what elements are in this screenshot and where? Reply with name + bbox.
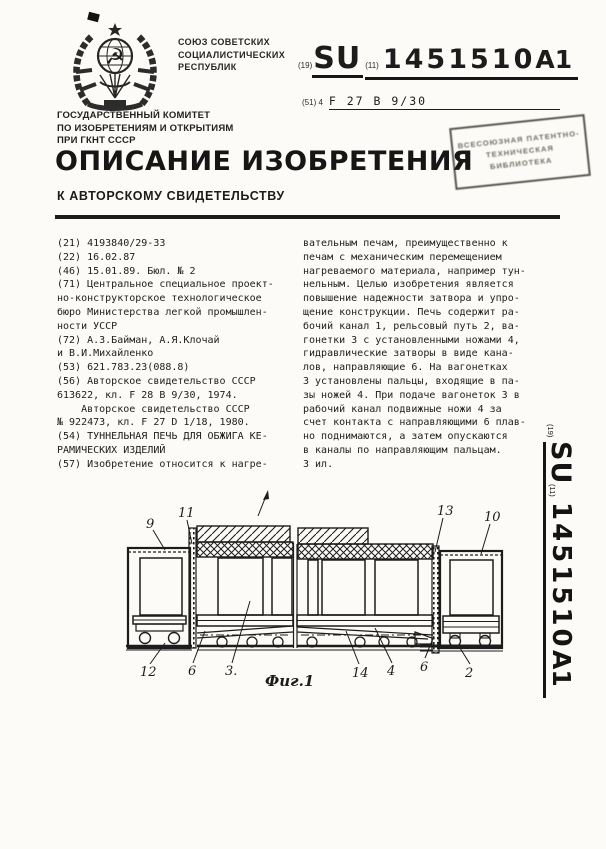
svg-text:☭: ☭	[105, 45, 125, 70]
figure-1-drawing: 9 11 13 10 12 6 3. 14 4 6 2 Фиг.1	[60, 486, 552, 706]
kiln-car-undercarriage	[197, 615, 433, 647]
country-code: SU	[312, 44, 363, 78]
doc-kind-code: A1	[535, 45, 572, 74]
abstract-column: вательным печам, преимущественно к печам…	[303, 237, 551, 472]
direction-arrow-icon	[263, 490, 269, 500]
code-19-label: (19)	[298, 61, 312, 70]
heavy-rule	[55, 215, 560, 219]
doc-number: 1451510	[383, 44, 536, 75]
ref-label-13: 13	[437, 504, 454, 519]
tunnel-roof	[197, 526, 433, 559]
doc-number-group: (11) 1451510 A1	[365, 44, 578, 80]
union-name: СОЮЗ СОВЕТСКИХ СОЦИАЛИСТИЧЕСКИХ РЕСПУБЛИ…	[178, 36, 285, 74]
ref-label-6a: 6	[188, 664, 196, 679]
ref-label-14: 14	[352, 666, 369, 681]
ref-label-11: 11	[178, 506, 195, 521]
entry-chamber	[126, 548, 192, 650]
page-title: ОПИСАНИЕ ИЗОБРЕТЕНИЯ	[55, 146, 473, 177]
rail-track	[197, 646, 433, 650]
side-country-code: SU	[545, 441, 576, 484]
exit-gate-wall	[432, 546, 439, 653]
side-code-19: (19)	[546, 424, 555, 437]
ipc-row: (51) 4 F 27 B 9/30	[302, 94, 560, 110]
ref-label-4: 4	[386, 664, 395, 679]
ref-label-3: 3.	[225, 664, 237, 679]
ref-label-2: 2	[464, 666, 473, 681]
patent-document-page: ☭ СОЮЗ СОВЕТСКИХ СОЦИАЛИСТИЧЕСКИХ РЕСПУБ…	[0, 0, 606, 849]
code-51-label: (51) 4	[302, 98, 323, 107]
document-id-row: (19) SU (11) 1451510 A1	[298, 44, 560, 80]
ref-label-6b: 6	[420, 660, 428, 675]
figure-caption: Фиг.1	[265, 672, 314, 690]
ref-label-12: 12	[140, 665, 157, 680]
committee-name: ГОСУДАРСТВЕННЫЙ КОМИТЕТ ПО ИЗОБРЕТЕНИЯМ …	[57, 110, 233, 148]
ref-label-10: 10	[484, 510, 501, 525]
ipc-code: F 27 B 9/30	[329, 94, 560, 110]
entry-gate-wall	[189, 528, 196, 648]
bibliographic-column: (21) 4193840/29-33 (22) 16.02.87 (46) 15…	[57, 237, 299, 472]
page-subtitle: К АВТОРСКОМУ СВИДЕТЕЛЬСТВУ	[57, 189, 285, 203]
ref-label-9: 9	[146, 517, 154, 532]
code-11-label: (11)	[365, 61, 379, 70]
ussr-coat-of-arms-icon: ☭	[62, 20, 168, 112]
